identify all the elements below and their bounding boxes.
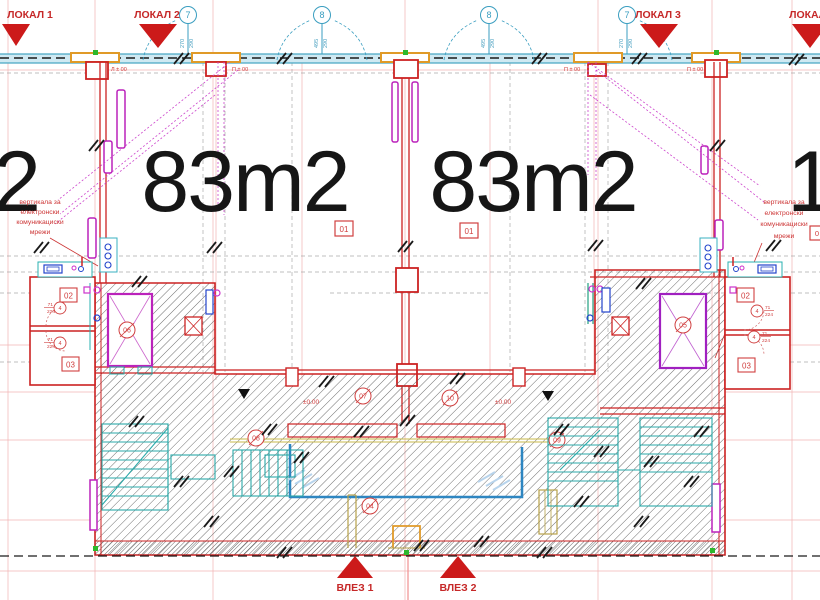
dim-290-b: 290 [323, 39, 329, 48]
floor-plan-screenshot: 7 8 8 7 270 290 495 290 495 290 270 290 … [0, 0, 820, 600]
survey-point-icon [404, 550, 409, 555]
detail-dim-71: 71 [762, 331, 768, 337]
vlez-2-triangle-icon [440, 556, 476, 578]
lokal-2-label: ЛОКАЛ 2 [134, 9, 180, 21]
detail-dim-224: 224 [762, 338, 770, 344]
lokal-3-triangle-icon [640, 24, 678, 48]
room-tag-05: 05 [679, 323, 687, 330]
edge-tag-partial: 0 [815, 229, 819, 238]
level-text-p3: П ± 00 [687, 67, 703, 73]
area-label-right-unit: 83m2 [429, 134, 636, 230]
detail-dim-71: 71 [48, 337, 54, 343]
level-zero-right: ±0.00 [495, 399, 512, 406]
lokal-3-label: ЛОКАЛ 3 [635, 9, 681, 21]
survey-point-icon [403, 50, 408, 55]
riser-note-left-line1: вертикала за [19, 199, 61, 206]
unit-tag-01-right: 01 [465, 227, 474, 236]
riser-note-right-line4: мрежи [774, 233, 795, 240]
detail-dim-71: 71 [48, 302, 54, 308]
room-tag-07: 07 [359, 394, 367, 401]
detail-bubble-4: 4 [58, 306, 61, 312]
level-text-l: Л ± 00 [111, 67, 127, 73]
dim-495-a: 495 [314, 39, 320, 48]
vlez-2-label: ВЛЕЗ 2 [439, 582, 476, 594]
grid-bubble-7a: 7 [185, 10, 190, 20]
lokal-4-label: ЛОКАЛ 4 [789, 9, 820, 21]
dim-290-c: 290 [490, 39, 496, 48]
detail-dim-224: 224 [47, 344, 55, 350]
room-tag-04: 04 [366, 504, 374, 511]
dim-270-a: 270 [180, 39, 186, 48]
lokal-1-label: ЛОКАЛ 1 [7, 9, 53, 21]
room-tag-08: 08 [252, 436, 260, 443]
riser-note-right-line3: комуникациски [760, 221, 807, 228]
riser-note-right-line1: вертикала за [763, 199, 805, 206]
lokal-markers: ЛОКАЛ 1 ЛОКАЛ 2 ЛОКАЛ 3 ЛОКАЛ 4 [2, 9, 820, 48]
area-label-left-unit: 83m2 [141, 134, 348, 230]
level-zero-left: ±0.00 [303, 399, 320, 406]
room-tag-06: 06 [123, 328, 131, 335]
entrance-markers: ВЛЕЗ 1 ВЛЕЗ 2 [336, 556, 476, 594]
survey-point-icon [93, 50, 98, 55]
grid-bubble-8a: 8 [319, 10, 324, 20]
room-tag-03-right: 03 [742, 362, 751, 371]
lokal-4-triangle-icon [792, 24, 820, 48]
room-tag-02-right: 02 [741, 292, 750, 301]
survey-point-icon [714, 50, 719, 55]
riser-note-left-line4: мрежи [30, 229, 51, 236]
lokal-2-triangle-icon [139, 24, 177, 48]
riser-note-left-line3: комуникациски [16, 219, 63, 226]
room-tag-02-left: 02 [64, 292, 73, 301]
survey-point-icon [710, 548, 715, 553]
grid-bubble-8b: 8 [486, 10, 491, 20]
detail-dim-224: 224 [765, 312, 773, 318]
grid-bubble-7b: 7 [624, 10, 629, 20]
vlez-1-triangle-icon [337, 556, 373, 578]
lokal-1-triangle-icon [2, 24, 30, 46]
riser-note-left-line2: електронски [21, 209, 60, 216]
pipe-shaft-right [700, 238, 717, 272]
level-text-p1: П ± 00 [232, 67, 248, 73]
dim-495-b: 495 [481, 39, 487, 48]
pipe-shaft-left [100, 238, 117, 272]
dim-290-d: 290 [628, 39, 634, 48]
room-tag-10: 10 [446, 396, 454, 403]
riser-note-right-line2: електронски [765, 210, 804, 217]
survey-point-icon [93, 546, 98, 551]
unit-tag-01-left: 01 [340, 225, 349, 234]
vlez-1-label: ВЛЕЗ 1 [336, 582, 373, 594]
detail-dim-71: 71 [765, 305, 771, 311]
dim-270-b: 270 [619, 39, 625, 48]
detail-bubble-4: 4 [752, 335, 755, 341]
detail-dim-224: 224 [47, 309, 55, 315]
detail-bubble-4: 4 [58, 341, 61, 347]
level-text-p2: П ± 00 [564, 67, 580, 73]
dim-290-a: 290 [189, 39, 195, 48]
detail-bubble-4: 4 [755, 309, 758, 315]
floor-plan-canvas: 7 8 8 7 270 290 495 290 495 290 270 290 … [0, 0, 820, 600]
room-tag-03-left: 03 [66, 361, 75, 370]
room-tag-09: 09 [553, 438, 561, 445]
